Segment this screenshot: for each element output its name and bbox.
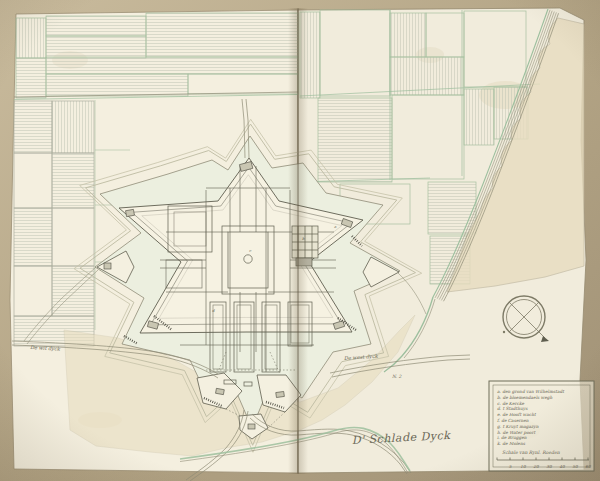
scanned-atlas-page: a. den grond van Wilhelmstadt b. de bloe… bbox=[0, 0, 600, 481]
fortress-map-svg: a. den grond van Wilhelmstadt b. de bloe… bbox=[0, 0, 600, 481]
vignette-overlay bbox=[0, 0, 600, 481]
